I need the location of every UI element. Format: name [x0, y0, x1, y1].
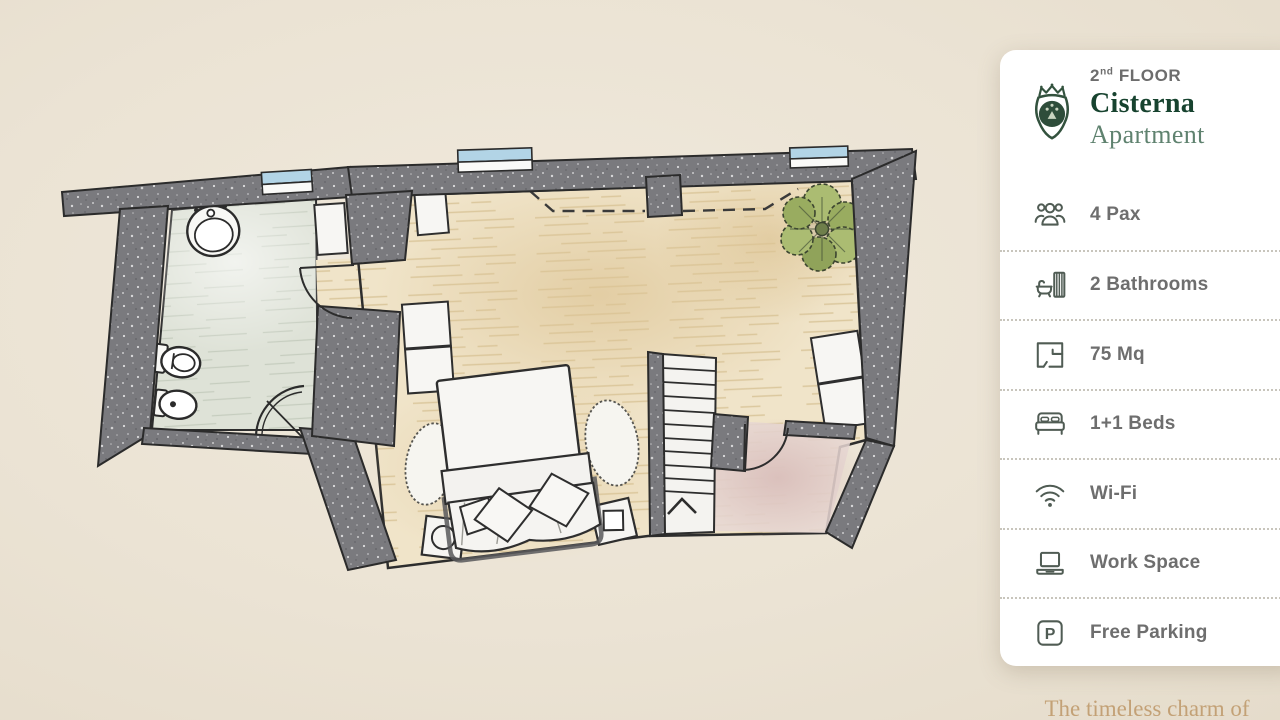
- amenity-label: 2 Bathrooms: [1090, 274, 1208, 296]
- people-group-icon: [1028, 198, 1072, 232]
- amenity-label: 75 Mq: [1090, 344, 1145, 366]
- heraldic-crest-icon: [1026, 82, 1078, 144]
- amenity-beds: 1+1 Beds: [1000, 389, 1280, 459]
- apartment-subtitle: Apartment: [1090, 120, 1205, 150]
- bathroom-cabinet: [314, 203, 347, 255]
- tagline: The timeless charm of: [1002, 696, 1280, 720]
- laptop-icon: [1028, 546, 1072, 580]
- amenities-list: 4 Pax 2 Bathrooms: [1000, 180, 1280, 667]
- parking-icon: P: [1028, 616, 1072, 650]
- floor-plan-svg: [0, 0, 980, 720]
- amenity-label: 1+1 Beds: [1090, 413, 1176, 435]
- amenity-bathrooms: 2 Bathrooms: [1000, 250, 1280, 320]
- floor-plan: [0, 0, 980, 720]
- amenity-area: 75 Mq: [1000, 319, 1280, 389]
- window-3: [790, 146, 849, 168]
- double-bed-icon: [1028, 407, 1072, 441]
- amenity-wifi: Wi-Fi: [1000, 458, 1280, 528]
- corridor-cabinet: [414, 190, 449, 236]
- amenity-parking: P Free Parking: [1000, 597, 1280, 667]
- amenity-label: 4 Pax: [1090, 204, 1141, 226]
- amenity-label: Work Space: [1090, 552, 1200, 574]
- amenity-label: Wi-Fi: [1090, 483, 1137, 505]
- apartment-name: Cisterna: [1090, 88, 1195, 120]
- staircase: [662, 354, 716, 534]
- window-2: [458, 148, 533, 172]
- bathtub-shower-icon: [1028, 268, 1072, 302]
- svg-text:P: P: [1045, 626, 1056, 643]
- window-1: [261, 169, 312, 194]
- amenity-pax: 4 Pax: [1000, 180, 1280, 250]
- amenity-workspace: Work Space: [1000, 528, 1280, 598]
- page: 2nd FLOOR Cisterna Apartment 4 Pax: [0, 0, 1280, 720]
- floor-plan-icon: [1028, 338, 1072, 372]
- amenity-label: Free Parking: [1090, 622, 1208, 644]
- apartment-info-card: 2nd FLOOR Cisterna Apartment 4 Pax: [1000, 50, 1280, 666]
- floor-label: 2nd FLOOR: [1090, 66, 1181, 86]
- wifi-icon: [1028, 477, 1072, 511]
